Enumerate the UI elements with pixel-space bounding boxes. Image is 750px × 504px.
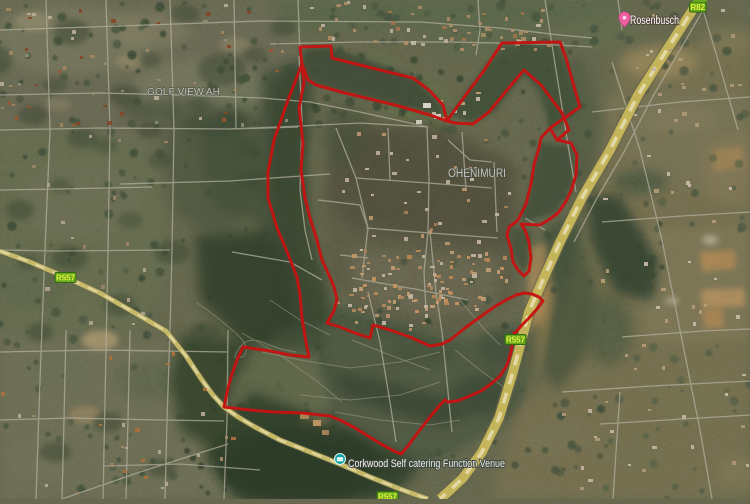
svg-text:R557: R557	[506, 336, 526, 345]
svg-text:R82: R82	[690, 3, 705, 12]
svg-text:R557: R557	[378, 493, 398, 500]
svg-text:R557: R557	[56, 274, 76, 283]
svg-text:Corkwood Self catering Functio: Corkwood Self catering Function Venue	[348, 458, 505, 470]
svg-text:OHENIMURI: OHENIMURI	[448, 168, 506, 180]
svg-text:Rosenbusch: Rosenbusch	[630, 15, 679, 27]
svg-text:GOLF VIEW AH: GOLF VIEW AH	[147, 86, 220, 98]
